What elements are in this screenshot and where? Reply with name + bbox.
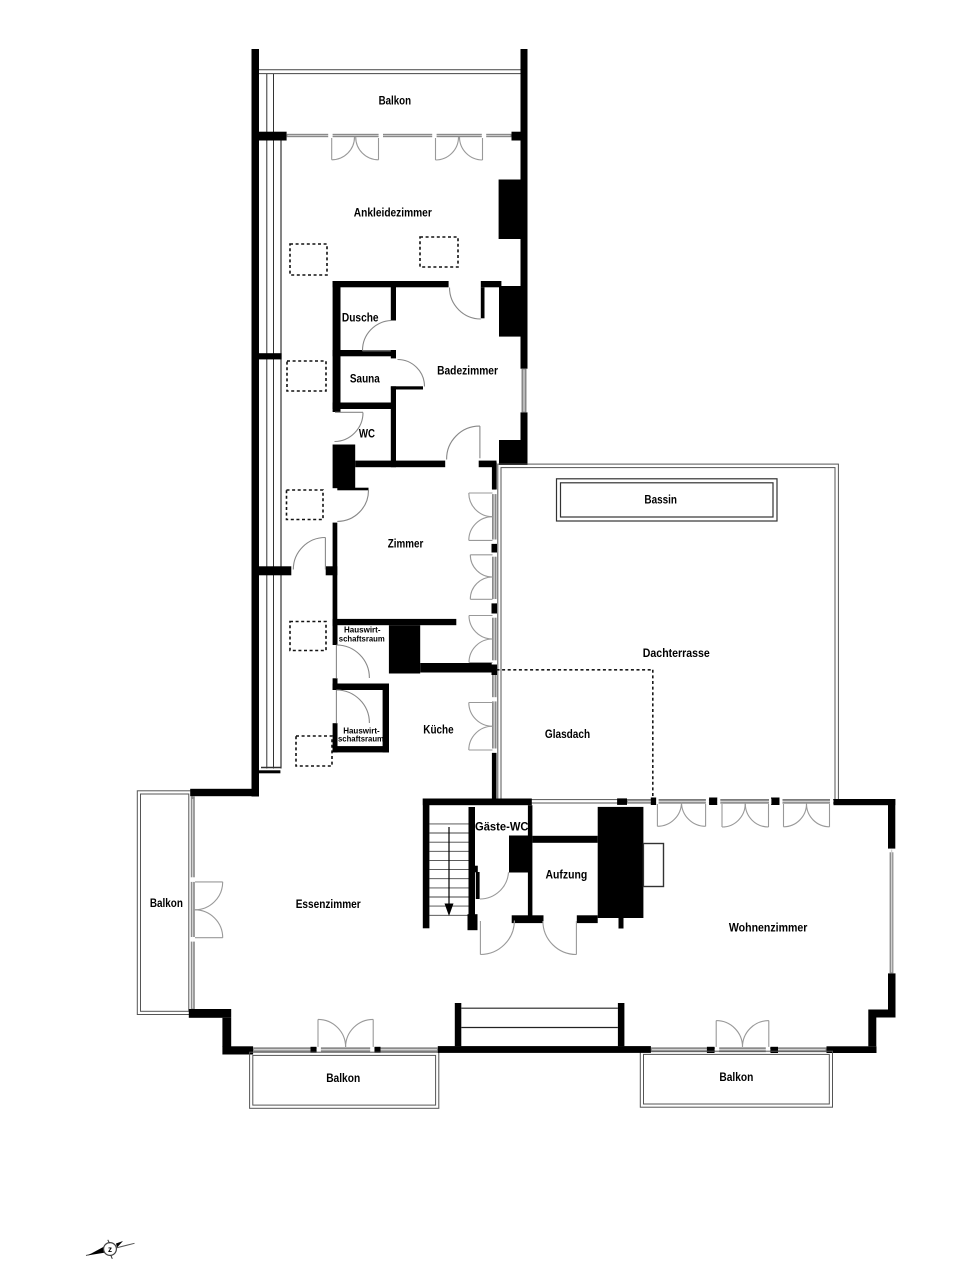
svg-text:Balkon: Balkon	[326, 1071, 360, 1085]
svg-text:WC: WC	[359, 426, 375, 440]
svg-text:z: z	[108, 1245, 112, 1254]
svg-text:Dusche: Dusche	[342, 310, 379, 324]
svg-text:Aufzung: Aufzung	[546, 868, 588, 882]
svg-text:Glasdach: Glasdach	[545, 727, 590, 741]
svg-text:Dachterrasse: Dachterrasse	[643, 646, 710, 660]
svg-text:Hauswirt-: Hauswirt-	[344, 626, 381, 635]
svg-text:Balkon: Balkon	[379, 94, 412, 108]
svg-text:Zimmer: Zimmer	[388, 537, 424, 551]
svg-text:Sauna: Sauna	[350, 371, 380, 385]
svg-text:Balkon: Balkon	[719, 1070, 753, 1084]
svg-text:Gäste-WC: Gäste-WC	[475, 819, 529, 833]
svg-text:Ankleidezimmer: Ankleidezimmer	[354, 206, 432, 220]
svg-text:Küche: Küche	[423, 723, 454, 737]
svg-text:Essenzimmer: Essenzimmer	[296, 897, 361, 911]
svg-text:Badezimmer: Badezimmer	[437, 363, 498, 377]
svg-text:schaftsraum: schaftsraum	[339, 634, 385, 643]
svg-text:Wohnenzimmer: Wohnenzimmer	[729, 920, 808, 934]
svg-text:Balkon: Balkon	[150, 896, 183, 910]
svg-text:Bassin: Bassin	[644, 493, 677, 507]
svg-text:schaftsraum: schaftsraum	[338, 735, 384, 744]
